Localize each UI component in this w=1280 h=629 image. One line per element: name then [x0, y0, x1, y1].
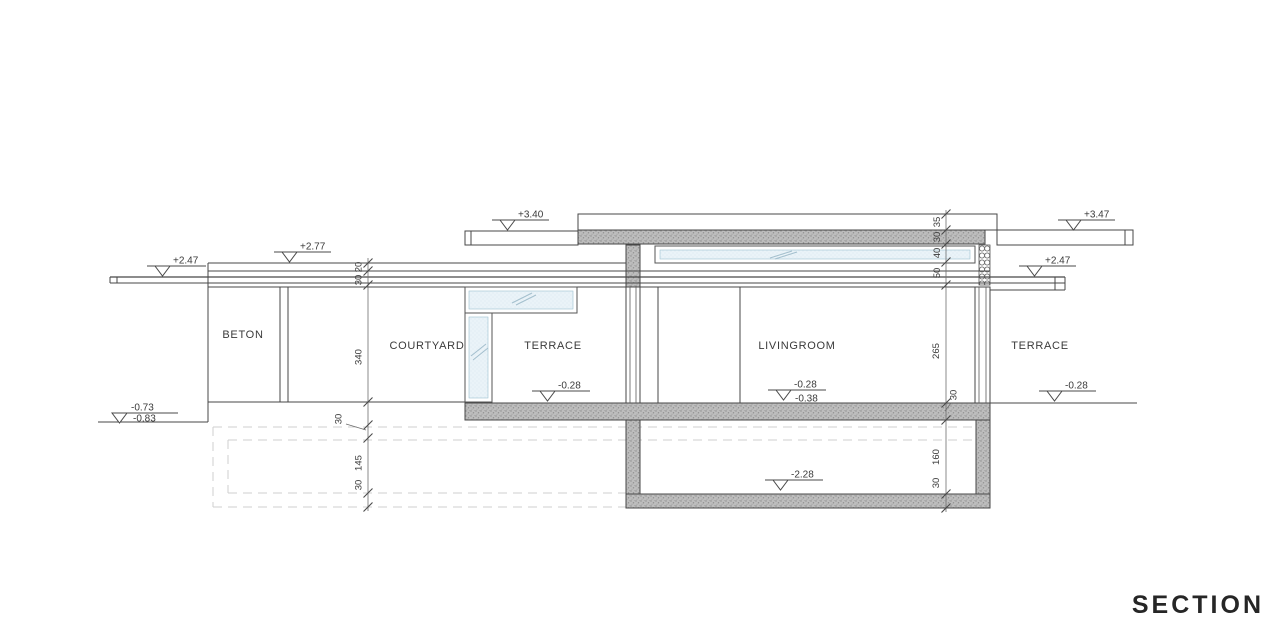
room-label-terrace-left: TERRACE: [524, 340, 581, 352]
elevation-basement-floor: -2.28: [765, 470, 823, 491]
dim-floor-slab-right: 30: [949, 390, 960, 401]
elevation-ground-left: -0.73 -0.83: [112, 403, 178, 425]
elevation-terrace-right-floor: -0.28: [1039, 381, 1096, 402]
basement-wall-left: [626, 420, 640, 494]
clerestory-glass: [660, 250, 970, 259]
dim-basement-height: 160: [931, 449, 942, 465]
room-label-beton: BETON: [222, 329, 263, 341]
dim-roof-beam: 50: [932, 268, 943, 279]
section-drawing-page: 20 30 340 30 145 30 35 30 40 50 265 30 1…: [0, 0, 1280, 629]
room-label-livingroom: LIVINGROOM: [758, 340, 835, 352]
elevation-roof-canopy-left: +3.40: [492, 210, 549, 231]
dim-clerestory-height: 40: [932, 248, 943, 259]
column-right: [975, 287, 990, 403]
column-mid: [626, 287, 640, 403]
room-label-terrace-right: TERRACE: [1011, 340, 1068, 352]
elevation-canopy-left: +2.47: [147, 256, 206, 277]
drawing-title: SECTION: [1132, 591, 1264, 619]
elevation-label: -0.28: [794, 380, 817, 391]
roof-canopy-right-slab: [997, 230, 1133, 245]
elevation-label: -2.28: [791, 470, 814, 481]
dim-roof-parapet: 35: [932, 217, 943, 228]
basement-floor-slab: [626, 494, 990, 508]
insulation-right: [979, 245, 990, 285]
dim-excavation-slab-left: 30: [354, 480, 365, 491]
dimension-chain-left: 20 30 340 30 145 30: [334, 258, 373, 512]
elevation-label: -0.83: [133, 414, 156, 425]
room-label-courtyard: COURTYARD: [390, 340, 465, 352]
dim-parapet-left-thickness: 30: [354, 275, 365, 286]
glass-panel-horizontal: [469, 291, 573, 309]
elevation-label: -0.38: [795, 394, 818, 405]
section-drawing: 20 30 340 30 145 30 35 30 40 50 265 30 1…: [0, 0, 1280, 629]
elevation-label: -0.28: [558, 381, 581, 392]
floor-slab: [465, 403, 990, 420]
structure-lines: [98, 263, 1137, 422]
elevation-parapet-left: +2.77: [274, 242, 331, 263]
column-upper: [626, 245, 640, 287]
dim-parapet-cap-left: 20: [354, 262, 365, 273]
dim-excavation-depth-left: 145: [354, 455, 365, 471]
elevation-canopy-right: +2.47: [1019, 256, 1076, 277]
elevation-label: +3.47: [1084, 210, 1110, 221]
basement-wall-right: [976, 420, 990, 494]
elevation-label: -0.28: [1065, 381, 1088, 392]
dim-roof-slab: 30: [932, 232, 943, 243]
elevation-label: +2.47: [173, 256, 199, 267]
concrete-elements: [465, 230, 990, 508]
elevation-terrace-floor: -0.28: [532, 381, 590, 402]
elevation-livingroom-floor: -0.28 -0.38: [768, 380, 826, 405]
dim-room-height: 265: [931, 343, 942, 359]
elevation-label: +2.77: [300, 242, 326, 253]
elevation-label: +2.47: [1045, 256, 1071, 267]
roof-slab: [578, 230, 985, 244]
dim-slab-under-left: 30: [334, 414, 345, 425]
elevation-label: -0.73: [131, 403, 154, 414]
elevation-roof-canopy-right: +3.47: [1058, 210, 1115, 231]
roof-canopy-left-slab: [465, 231, 578, 245]
glass-panel-vertical: [469, 317, 488, 398]
dim-wall-height-left: 340: [354, 349, 365, 365]
dim-basement-slab: 30: [931, 478, 942, 489]
elevation-label: +3.40: [518, 210, 544, 221]
